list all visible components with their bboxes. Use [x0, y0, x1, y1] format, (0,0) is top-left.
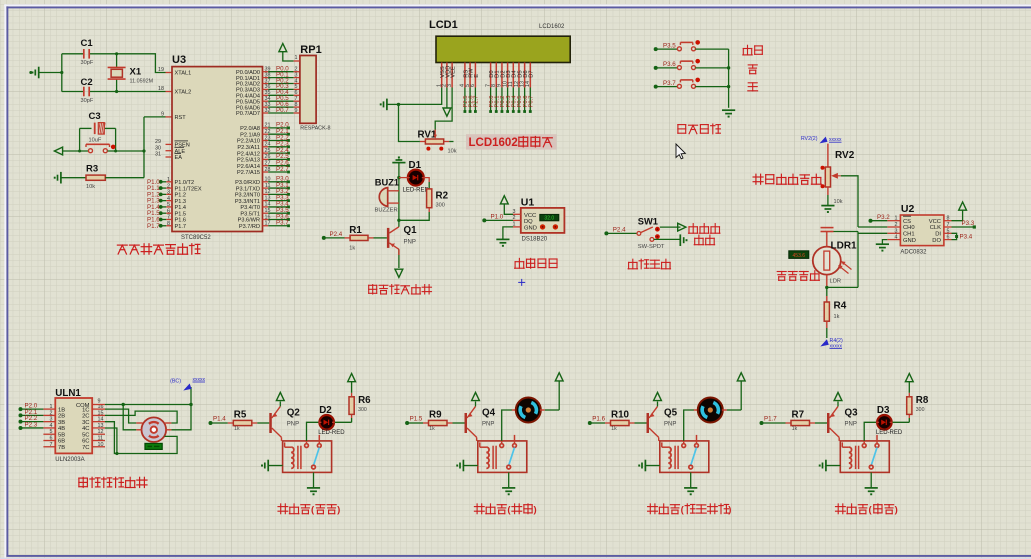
- svg-text:P3.5: P3.5: [663, 42, 676, 49]
- svg-text:P2.7: P2.7: [276, 166, 289, 173]
- svg-text:1k: 1k: [834, 314, 840, 320]
- svg-text:P2.4: P2.4: [613, 227, 626, 234]
- svg-text:X1: X1: [130, 67, 142, 78]
- svg-text:R3: R3: [86, 163, 98, 174]
- svg-text:SW-SPDT: SW-SPDT: [638, 244, 665, 250]
- svg-text:P1.4: P1.4: [213, 415, 226, 422]
- svg-text:BUZ1: BUZ1: [375, 178, 399, 188]
- svg-text:P2.7/A15: P2.7/A15: [237, 170, 260, 176]
- svg-text:P3.7/RD: P3.7/RD: [239, 224, 260, 230]
- svg-text:LCD1602: LCD1602: [469, 137, 518, 149]
- svg-text:21: 21: [265, 123, 271, 129]
- svg-text:PSEN: PSEN: [175, 143, 190, 149]
- svg-text:P2.0/A8: P2.0/A8: [240, 126, 260, 132]
- svg-text:11.0592M: 11.0592M: [130, 78, 154, 84]
- svg-text:6: 6: [947, 235, 950, 241]
- svg-text:23: 23: [265, 135, 271, 141]
- svg-text:31: 31: [155, 152, 161, 158]
- svg-text:GND: GND: [903, 238, 916, 244]
- svg-text:1: 1: [50, 404, 53, 410]
- svg-text:13: 13: [98, 423, 104, 429]
- svg-text:P2.1/A9: P2.1/A9: [240, 132, 260, 138]
- svg-text:10k: 10k: [834, 199, 843, 205]
- svg-text:10: 10: [265, 177, 271, 183]
- svg-text:7: 7: [50, 442, 53, 448]
- svg-text:24: 24: [265, 142, 271, 148]
- svg-text:LED-RED: LED-RED: [876, 430, 903, 436]
- svg-text:1: 1: [295, 55, 298, 61]
- svg-text:P3.7: P3.7: [663, 80, 676, 87]
- svg-text:VCC: VCC: [524, 213, 536, 219]
- svg-text:LCD1602: LCD1602: [539, 24, 565, 30]
- svg-text:5: 5: [947, 228, 950, 234]
- svg-text:): ): [534, 505, 537, 516]
- svg-text:Q2: Q2: [287, 408, 301, 419]
- svg-text:1k: 1k: [792, 426, 798, 432]
- svg-text:CS: CS: [903, 219, 911, 225]
- svg-text:P0.7: P0.7: [528, 96, 534, 108]
- svg-text:U3: U3: [172, 54, 186, 66]
- svg-text:453.6: 453.6: [793, 253, 806, 259]
- svg-text:P3.4/T0: P3.4/T0: [240, 205, 260, 211]
- svg-text:3: 3: [167, 190, 170, 196]
- svg-text:C3: C3: [89, 111, 101, 122]
- svg-text:ADC0832: ADC0832: [900, 250, 927, 256]
- svg-text:1k: 1k: [349, 246, 355, 252]
- svg-text:P0.7/AD7: P0.7/AD7: [236, 111, 260, 117]
- svg-text:DQ: DQ: [524, 219, 533, 225]
- svg-text:14: 14: [525, 81, 531, 87]
- svg-text:P1.2: P1.2: [175, 193, 187, 199]
- svg-text:11: 11: [98, 436, 104, 442]
- svg-text:VEE: VEE: [451, 66, 457, 78]
- svg-text:30pF: 30pF: [81, 98, 94, 104]
- svg-text:): ): [895, 505, 898, 516]
- svg-text:ALE: ALE: [175, 149, 186, 155]
- svg-text:4B: 4B: [58, 426, 65, 432]
- svg-text:P0.7: P0.7: [276, 107, 289, 114]
- svg-text:): ): [728, 505, 731, 516]
- svg-text:D2: D2: [319, 405, 332, 416]
- svg-text:R7: R7: [792, 409, 805, 420]
- svg-text:4C: 4C: [82, 426, 89, 432]
- svg-text:P1.6: P1.6: [592, 415, 605, 422]
- svg-text:7C: 7C: [82, 445, 89, 451]
- svg-text:): ): [337, 505, 340, 516]
- svg-text:8: 8: [167, 221, 170, 227]
- svg-text:8: 8: [947, 216, 950, 222]
- svg-text:2: 2: [167, 183, 170, 189]
- svg-text:P1.6: P1.6: [175, 218, 187, 224]
- svg-text:5: 5: [50, 429, 53, 435]
- svg-text:R4: R4: [834, 301, 847, 312]
- svg-text:C1: C1: [81, 38, 94, 49]
- svg-text:SW1: SW1: [638, 216, 658, 226]
- svg-text:D1: D1: [409, 160, 422, 171]
- svg-text:17: 17: [265, 221, 271, 227]
- svg-text:U2: U2: [901, 203, 915, 215]
- svg-text:P2.6/A14: P2.6/A14: [237, 164, 260, 170]
- svg-text:9: 9: [98, 399, 101, 405]
- svg-text:15: 15: [265, 208, 271, 214]
- svg-text:STC89C52: STC89C52: [181, 235, 211, 241]
- svg-text:32: 32: [265, 108, 271, 114]
- svg-text:D3: D3: [877, 405, 890, 416]
- svg-text:3C: 3C: [82, 420, 89, 426]
- svg-text:R6: R6: [358, 395, 371, 406]
- svg-text:9: 9: [295, 108, 298, 114]
- svg-text:2C: 2C: [82, 414, 89, 420]
- svg-text:P3.3/INT1: P3.3/INT1: [235, 199, 260, 205]
- svg-text:5C: 5C: [82, 432, 89, 438]
- svg-text:27: 27: [265, 161, 271, 167]
- svg-text:Q5: Q5: [664, 408, 678, 419]
- svg-text:P1.5: P1.5: [175, 211, 187, 217]
- svg-text:P1.3: P1.3: [175, 199, 187, 205]
- svg-text:P2.7: P2.7: [474, 96, 480, 108]
- svg-text:LDR: LDR: [830, 279, 842, 285]
- svg-text:COM: COM: [76, 403, 90, 409]
- svg-text:P2.3: P2.3: [25, 421, 38, 428]
- svg-text:15: 15: [98, 410, 104, 416]
- svg-text:P2.4/A12: P2.4/A12: [237, 151, 260, 157]
- svg-text:300: 300: [436, 203, 445, 209]
- svg-text:32.0: 32.0: [544, 216, 554, 222]
- svg-text:P3.2: P3.2: [877, 214, 890, 221]
- svg-text:6: 6: [167, 208, 170, 214]
- svg-text:P3.3: P3.3: [962, 220, 975, 227]
- svg-text:14: 14: [265, 202, 271, 208]
- svg-text:4: 4: [167, 196, 170, 202]
- svg-text:PNP: PNP: [845, 422, 857, 428]
- svg-text:5: 5: [167, 202, 170, 208]
- svg-text:7B: 7B: [58, 445, 65, 451]
- svg-text:18: 18: [158, 86, 164, 92]
- svg-text:11: 11: [265, 183, 271, 189]
- svg-text:1: 1: [167, 177, 170, 183]
- svg-text:19: 19: [158, 67, 164, 73]
- svg-text:PNP: PNP: [287, 422, 299, 428]
- svg-text:12: 12: [265, 189, 271, 195]
- svg-text:1k: 1k: [234, 426, 240, 432]
- svg-text:Q3: Q3: [845, 408, 859, 419]
- svg-text:22: 22: [265, 129, 271, 135]
- svg-text:300: 300: [358, 407, 367, 413]
- svg-text:1k: 1k: [429, 426, 435, 432]
- svg-text:P1.4: P1.4: [175, 205, 187, 211]
- svg-text:3B: 3B: [58, 420, 65, 426]
- svg-text:29: 29: [155, 139, 161, 145]
- svg-text:10uF: 10uF: [89, 138, 102, 144]
- svg-text:XTAL1: XTAL1: [175, 71, 192, 77]
- svg-text:10k: 10k: [448, 149, 457, 155]
- svg-text:P3.0/RXD: P3.0/RXD: [235, 180, 260, 186]
- svg-text:P2.2/A10: P2.2/A10: [237, 139, 260, 145]
- svg-text:P3.4: P3.4: [960, 234, 973, 241]
- svg-text:6: 6: [50, 436, 53, 442]
- svg-text:30: 30: [155, 145, 161, 151]
- svg-text:R5: R5: [234, 409, 247, 420]
- svg-text:R1: R1: [349, 225, 362, 236]
- svg-text:26: 26: [265, 154, 271, 160]
- svg-text:2B: 2B: [58, 414, 65, 420]
- svg-text:P2.5/A13: P2.5/A13: [237, 158, 260, 164]
- svg-text:6C: 6C: [82, 439, 89, 445]
- svg-text:P1.0/T2: P1.0/T2: [175, 180, 195, 186]
- svg-text:LCD1: LCD1: [429, 19, 458, 31]
- svg-text:1B: 1B: [58, 407, 65, 413]
- svg-text:2: 2: [50, 410, 53, 416]
- svg-text:C2: C2: [81, 77, 93, 88]
- svg-text:RESPACK-8: RESPACK-8: [300, 126, 330, 132]
- svg-text:R2: R2: [436, 191, 449, 202]
- svg-text:E: E: [474, 74, 480, 78]
- svg-text:RST: RST: [175, 115, 187, 121]
- svg-text:P1.7: P1.7: [175, 224, 187, 230]
- svg-text:5B: 5B: [58, 432, 65, 438]
- svg-text:4: 4: [895, 235, 898, 241]
- svg-text:13: 13: [265, 195, 271, 201]
- svg-text:9: 9: [161, 112, 164, 118]
- svg-text:VCC: VCC: [929, 219, 941, 225]
- svg-text:CLK: CLK: [930, 225, 941, 231]
- svg-text:1k: 1k: [611, 426, 617, 432]
- svg-text:16: 16: [265, 214, 271, 220]
- svg-text:4: 4: [50, 423, 53, 429]
- svg-text:300: 300: [916, 407, 925, 413]
- svg-text:R10: R10: [611, 409, 630, 420]
- svg-text:PNP: PNP: [482, 422, 494, 428]
- svg-text:DO: DO: [932, 238, 941, 244]
- svg-text:10: 10: [98, 442, 104, 448]
- svg-text:P3.5/T1: P3.5/T1: [240, 211, 260, 217]
- svg-text:P2.3/A11: P2.3/A11: [237, 145, 260, 151]
- svg-text:RV2: RV2: [835, 150, 855, 161]
- svg-text:P2.4: P2.4: [330, 231, 343, 238]
- svg-text:(BC): (BC): [170, 379, 181, 385]
- svg-text:PNP: PNP: [664, 422, 676, 428]
- svg-text:DI: DI: [935, 232, 941, 238]
- svg-text:2: 2: [895, 222, 898, 228]
- svg-text:25: 25: [265, 148, 271, 154]
- svg-text:30pF: 30pF: [81, 60, 94, 66]
- svg-text:PNP: PNP: [404, 240, 416, 246]
- svg-text:GND: GND: [524, 225, 537, 231]
- svg-text:7: 7: [167, 215, 170, 221]
- svg-text:LED-RED: LED-RED: [318, 430, 345, 436]
- svg-text:ULN2003A: ULN2003A: [55, 457, 84, 463]
- svg-text:LED-RED: LED-RED: [403, 188, 430, 194]
- svg-text:P3.2/INT0: P3.2/INT0: [235, 193, 260, 199]
- svg-text:Q1: Q1: [404, 225, 418, 236]
- svg-text:CH0: CH0: [903, 225, 915, 231]
- svg-text:28: 28: [265, 167, 271, 173]
- svg-text:6: 6: [470, 84, 476, 87]
- svg-text:P3.6: P3.6: [663, 61, 676, 68]
- svg-text:P1.7: P1.7: [147, 223, 160, 230]
- svg-text:14: 14: [98, 417, 104, 423]
- svg-text:LDR1: LDR1: [831, 241, 858, 252]
- svg-text:Q4: Q4: [482, 408, 496, 419]
- svg-text:10k: 10k: [86, 184, 95, 190]
- svg-text:P1.0: P1.0: [491, 214, 504, 221]
- svg-text:P1.1/T2EX: P1.1/T2EX: [175, 186, 202, 192]
- svg-text:D7: D7: [529, 70, 535, 77]
- svg-text:3: 3: [895, 228, 898, 234]
- svg-text:DS18B20: DS18B20: [522, 237, 548, 243]
- svg-text:U1: U1: [521, 197, 535, 209]
- svg-text:P3.6/WR: P3.6/WR: [238, 218, 260, 224]
- svg-text:ULN1: ULN1: [55, 388, 81, 399]
- svg-text:BUZZER: BUZZER: [375, 207, 398, 213]
- svg-text:12: 12: [98, 429, 104, 435]
- svg-text:P3.1/TXD: P3.1/TXD: [236, 186, 260, 192]
- svg-text:P1.7: P1.7: [764, 415, 777, 422]
- svg-text:6B: 6B: [58, 439, 65, 445]
- svg-text:1: 1: [895, 216, 898, 222]
- svg-text:3: 3: [447, 84, 453, 87]
- svg-text:P3.7: P3.7: [276, 220, 289, 227]
- svg-text:R9: R9: [429, 409, 442, 420]
- svg-text:CH1: CH1: [903, 232, 915, 238]
- svg-text:R8: R8: [916, 395, 929, 406]
- svg-text:7: 7: [947, 222, 950, 228]
- svg-text:XTAL2: XTAL2: [175, 90, 192, 96]
- svg-text:EA: EA: [175, 155, 183, 161]
- svg-text:RV2(2): RV2(2): [801, 136, 818, 142]
- svg-text:P1.5: P1.5: [410, 415, 423, 422]
- svg-text:RP1: RP1: [300, 44, 321, 56]
- svg-text:3: 3: [50, 417, 53, 423]
